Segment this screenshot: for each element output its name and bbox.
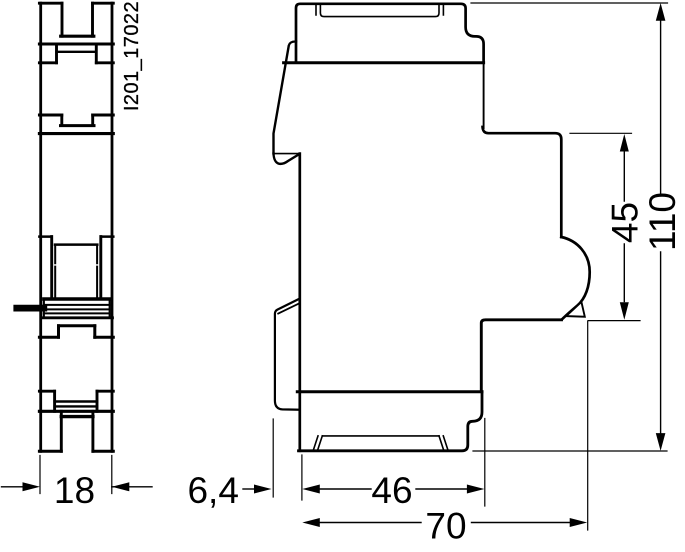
svg-text:18: 18 [54, 470, 95, 511]
svg-text:110: 110 [642, 192, 683, 251]
svg-text:45: 45 [605, 202, 646, 243]
svg-text:6,4: 6,4 [187, 470, 238, 511]
svg-text:I201_17022: I201_17022 [121, 1, 143, 111]
svg-text:70: 70 [425, 506, 466, 547]
svg-text:46: 46 [371, 470, 412, 511]
